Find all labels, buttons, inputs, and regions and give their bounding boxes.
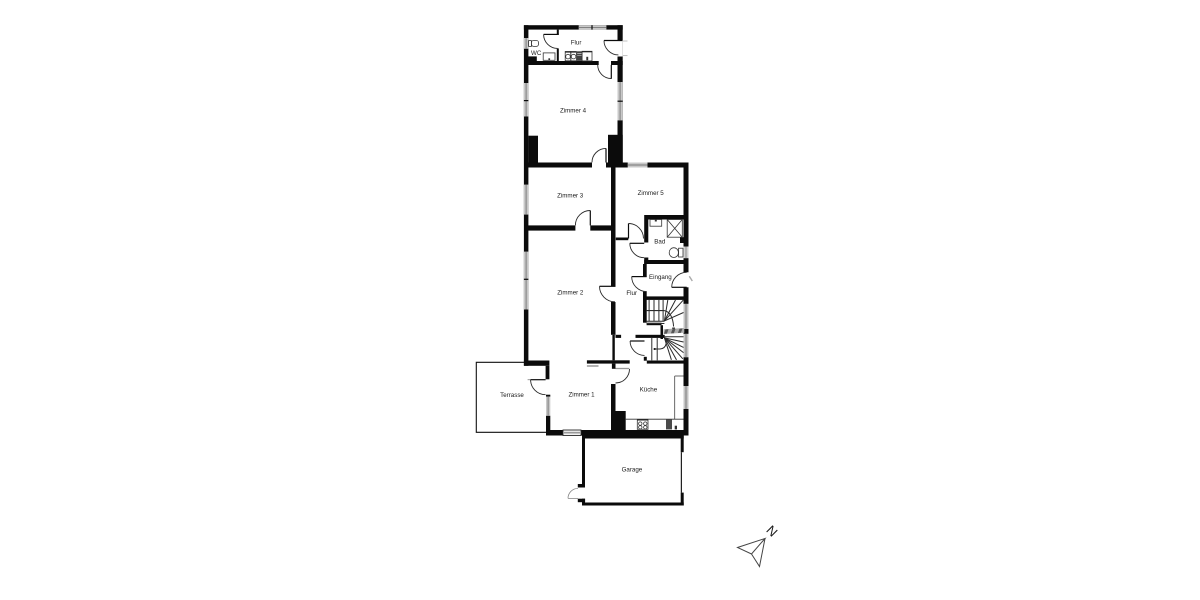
- svg-text:Garage: Garage: [622, 466, 643, 473]
- svg-text:Zimmer 3: Zimmer 3: [557, 192, 584, 199]
- svg-text:Terrasse: Terrasse: [500, 392, 524, 399]
- svg-text:Zimmer 5: Zimmer 5: [638, 190, 665, 197]
- svg-text:Flur: Flur: [626, 290, 637, 297]
- svg-text:Eingang: Eingang: [649, 274, 672, 281]
- svg-text:Küche: Küche: [640, 387, 658, 394]
- svg-text:Zimmer 1: Zimmer 1: [568, 392, 595, 399]
- svg-text:Bad: Bad: [654, 239, 666, 246]
- svg-text:WC: WC: [531, 50, 542, 57]
- svg-text:Flur: Flur: [571, 40, 582, 47]
- svg-text:Zimmer 4: Zimmer 4: [560, 108, 587, 115]
- svg-text:Zimmer 2: Zimmer 2: [557, 290, 584, 297]
